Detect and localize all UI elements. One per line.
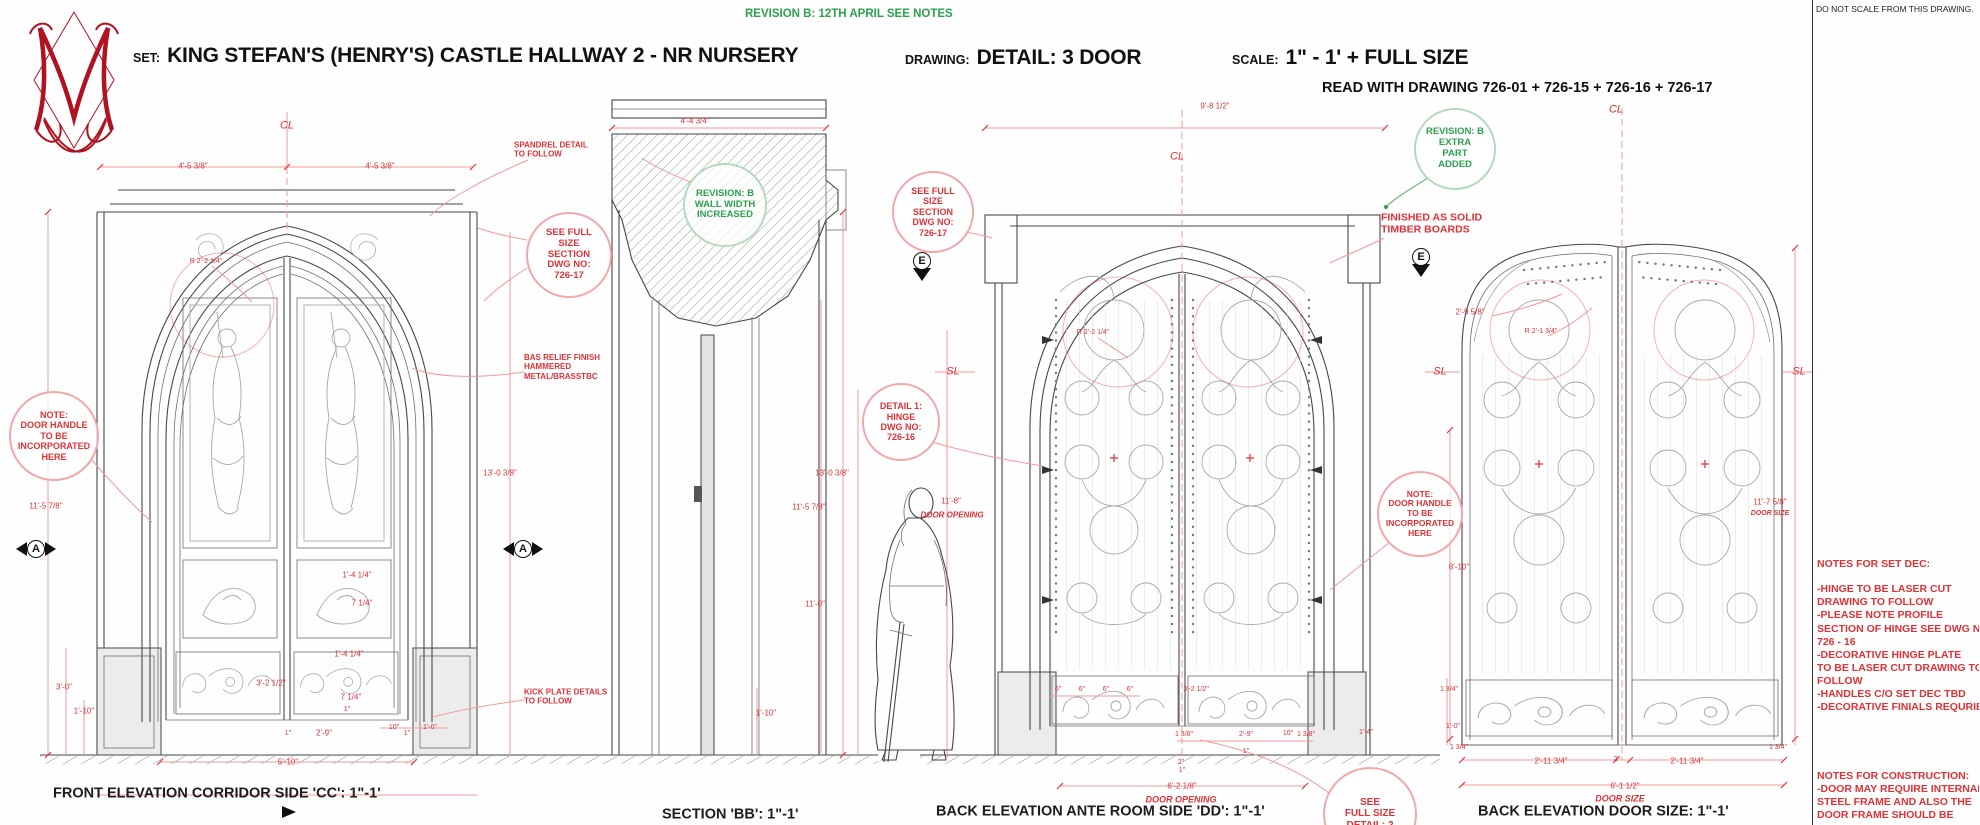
see-full-size-section-bubble-2: SEE FULL SIZE SECTION DWG NO: 726-17 xyxy=(892,171,974,253)
dim-label: SL xyxy=(1792,366,1805,379)
dim-label: 6" xyxy=(1055,686,1061,694)
spandrel-note: SPANDREL DETAIL TO FOLLOW xyxy=(514,141,588,160)
set-value: KING STEFAN'S (HENRY'S) CASTLE HALLWAY 2… xyxy=(167,44,798,68)
drawing-title: DRAWING: DETAIL: 3 DOOR xyxy=(905,46,1141,70)
set-dec-notes: NOTES FOR SET DEC: -HINGE TO BE LASER CU… xyxy=(1817,558,1979,714)
note-line: DOOR FRAME SHOULD BE xyxy=(1817,809,1979,822)
dim-label: CL xyxy=(1609,104,1623,117)
read-with-note: READ WITH DRAWING 726-01 + 726-15 + 726-… xyxy=(1322,80,1712,96)
revision-banner: REVISION B: 12TH APRIL SEE NOTES xyxy=(745,8,953,20)
caption-front-elevation: FRONT ELEVATION CORRIDOR SIDE 'CC': 1"-1… xyxy=(53,785,381,802)
note-line: 726 - 16 xyxy=(1817,636,1979,649)
dim-label: 6" xyxy=(1079,686,1085,694)
front-elevation-drawing xyxy=(45,112,528,818)
dim-label: 1'-4 1/4" xyxy=(334,649,363,658)
dim-label: 11'-5 7/8" xyxy=(29,501,62,510)
dim-label: 6" xyxy=(1103,686,1109,694)
section-marker-letter: A xyxy=(27,540,45,558)
note-line: DRAWING TO FOLLOW xyxy=(1817,596,1979,609)
scale-figure xyxy=(875,488,954,762)
construction-notes-lines: -DOOR MAY REQUIRE INTERNAL STEEL FRAME A… xyxy=(1817,783,1979,825)
dim-label: 1" xyxy=(404,730,410,738)
dim-label: 3'-2 1/2" xyxy=(256,678,285,687)
dim-label: DOOR OPENING xyxy=(920,510,983,519)
dim-label: 1 3/4" xyxy=(1769,744,1787,752)
dim-label: 7 1/4" xyxy=(341,692,362,701)
note-line: TO BE LASER CUT DRAWING TO xyxy=(1817,662,1979,675)
note-line: -DOOR MAY REQUIRE INTERNAL xyxy=(1817,783,1979,796)
dim-label: 6" xyxy=(1127,686,1133,694)
dim-label: 8'-10" xyxy=(1449,562,1469,571)
dim-label: 3'-2 1/2" xyxy=(1183,686,1209,694)
dim-label: R 2'-1 3/4" xyxy=(1525,328,1558,336)
dim-label: 1" xyxy=(285,730,291,738)
dim-label: 2" xyxy=(1614,756,1620,764)
scale-title: SCALE: 1" - 1' + FULL SIZE xyxy=(1232,46,1468,70)
note-line: -DECORATIVE FINIALS REQURIED xyxy=(1817,701,1979,714)
revision-extra-part-bubble: REVISION: B EXTRA PART ADDED xyxy=(1414,108,1496,190)
dim-label: DOOR SIZE xyxy=(1751,510,1790,518)
dim-label: 3'-0" xyxy=(56,682,72,691)
dim-label: 11'-8" xyxy=(941,496,961,505)
dim-label: 10" xyxy=(1283,730,1293,738)
drawing-sheet: REVISION B: 12TH APRIL SEE NOTES SET: KI… xyxy=(0,0,1980,825)
note-line: SECTION OF HINGE SEE DWG NO: xyxy=(1817,623,1979,636)
caption-section-bb: SECTION 'BB': 1"-1' xyxy=(662,806,798,823)
dim-label: 11'-5 7/8" xyxy=(792,502,825,511)
dim-label: SL xyxy=(1433,366,1446,379)
dim-label: CL xyxy=(1170,151,1184,164)
drawing-label: DRAWING: xyxy=(905,53,970,67)
drawing-value: DETAIL: 3 DOOR xyxy=(977,46,1142,70)
note-line: -DECORATIVE HINGE PLATE xyxy=(1817,649,1979,662)
dim-label: 1 3/8" xyxy=(1297,731,1315,739)
dim-label: 1 3/8" xyxy=(1175,731,1193,739)
section-marker-letter: A xyxy=(514,540,532,558)
dim-label: 6'-1 1/2" xyxy=(1610,781,1639,790)
construction-notes-title: NOTES FOR CONSTRUCTION: xyxy=(1817,770,1979,783)
scale-value: 1" - 1' + FULL SIZE xyxy=(1286,46,1469,70)
dim-label: 4'-4 3/4" xyxy=(680,116,709,125)
dim-label: 1'-0" xyxy=(423,724,437,732)
dim-label: 1'-4 1/4" xyxy=(342,570,371,579)
note-line: -HINGE TO BE LASER CUT xyxy=(1817,583,1979,596)
dim-label: 10" xyxy=(389,724,399,732)
note-line: -PLEASE NOTE PROFILE xyxy=(1817,609,1979,622)
dim-label: 2" xyxy=(1178,759,1184,767)
dim-label: 2'-9" xyxy=(316,728,332,737)
dim-label: 9'-8 1/2" xyxy=(1200,101,1229,110)
logo xyxy=(30,12,118,152)
dim-label: SL xyxy=(946,366,959,379)
drawing-canvas xyxy=(0,0,1980,825)
timber-boards-note: FINISHED AS SOLID TIMBER BOARDS xyxy=(1381,212,1482,237)
set-title: SET: KING STEFAN'S (HENRY'S) CASTLE HALL… xyxy=(133,44,799,68)
set-dec-notes-lines: -HINGE TO BE LASER CUT DRAWING TO FOLLOW… xyxy=(1817,583,1979,714)
section-marker-letter: E xyxy=(913,252,931,270)
caption-back-elevation-door-size: BACK ELEVATION DOOR SIZE: 1"-1' xyxy=(1478,803,1729,820)
dim-label: 1'-0" xyxy=(1446,723,1460,731)
dim-label: 7 1/4" xyxy=(352,598,373,607)
dim-label: 1 3/4" xyxy=(1440,686,1458,694)
section-marker-letter: E xyxy=(1412,248,1430,266)
dim-label: 1" xyxy=(344,706,350,714)
dim-label: 2'-9 5/8" xyxy=(1455,307,1484,316)
dim-label: 1" xyxy=(1243,748,1249,756)
set-label: SET: xyxy=(133,51,160,65)
door-handle-note-bubble-right: NOTE: DOOR HANDLE TO BE INCORPORATED HER… xyxy=(1377,471,1463,557)
dim-label: 11'-0" xyxy=(805,599,825,608)
detail-1-hinge-bubble: DETAIL 1: HINGE DWG NO: 726-16 xyxy=(862,383,940,461)
construction-notes: NOTES FOR CONSTRUCTION: -DOOR MAY REQUIR… xyxy=(1817,770,1979,825)
door-handle-note-bubble-left: NOTE: DOOR HANDLE TO BE INCORPORATED HER… xyxy=(9,391,99,481)
dim-label: 6'-2 1/8" xyxy=(1167,781,1196,790)
bas-relief-note: BAS RELIEF FINISH HAMMERED METAL/BRASSTB… xyxy=(524,353,600,381)
dim-label: CL xyxy=(280,120,294,133)
note-line: -HANDLES C/O SET DEC TBD xyxy=(1817,688,1979,701)
back-elevation-door-size-drawing xyxy=(1447,108,1812,788)
caption-back-elevation-dd: BACK ELEVATION ANTE ROOM SIDE 'DD': 1"-1… xyxy=(936,803,1265,820)
dim-label: 13'-0 3/8" xyxy=(483,468,517,477)
see-full-size-section-bubble: SEE FULL SIZE SECTION DWG NO: 726-17 xyxy=(526,212,612,298)
dim-label: 2'-11 3/4" xyxy=(1534,756,1567,765)
revision-wall-width-bubble: REVISION: B WALL WIDTH INCREASED xyxy=(683,163,767,247)
dim-label: 13'-0 3/8" xyxy=(815,468,849,477)
dim-label: R 2'-2 1/4" xyxy=(190,258,223,266)
dim-label: 1'-10" xyxy=(74,706,94,715)
dim-label: 5'-10" xyxy=(278,757,298,766)
dim-label: 4'-5 3/8" xyxy=(365,161,394,170)
ground-line xyxy=(40,755,1440,764)
note-line: STEEL FRAME AND ALSO THE xyxy=(1817,796,1979,809)
dim-label: 2'-11 3/4" xyxy=(1670,756,1703,765)
dim-label: 1'-10" xyxy=(756,708,776,717)
set-dec-notes-title: NOTES FOR SET DEC: xyxy=(1817,558,1979,571)
notes-column-divider xyxy=(1812,0,1813,825)
dim-label: R 2'-2 1/4" xyxy=(1077,329,1110,337)
kick-plate-note: KICK PLATE DETAILS TO FOLLOW xyxy=(524,688,607,707)
note-line: FOLLOW xyxy=(1817,675,1979,688)
scale-label: SCALE: xyxy=(1232,53,1279,67)
dim-label: 1" xyxy=(1179,767,1185,775)
do-not-scale-note: DO NOT SCALE FROM THIS DRAWING. xyxy=(1816,4,1974,14)
dim-label: 11'-7 5/8" xyxy=(1753,497,1786,506)
dim-label: 2'-9" xyxy=(1239,731,1253,739)
dim-label: 1'-4" xyxy=(1359,729,1373,737)
dim-label: 4'-5 3/8" xyxy=(178,161,207,170)
dim-label: 1 3/4" xyxy=(1450,744,1468,752)
